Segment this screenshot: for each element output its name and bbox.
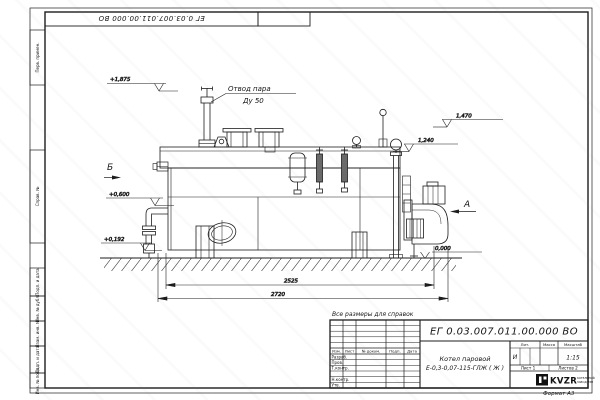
- mass-header: Масса: [543, 342, 555, 347]
- elevation-value: +1,875: [110, 77, 131, 83]
- drawing-canvas: Перв. примен. Справ. № Подп. и дата Инв.…: [0, 0, 600, 400]
- stamp-designation-inverted: ЕГ 0.03.007.011.00.000 ВО: [98, 14, 205, 22]
- steam-outlet-pipe: [199, 87, 215, 148]
- col-header-data: Дата: [407, 349, 417, 354]
- top-stamp: ЕГ 0.03.007.011.00.000 ВО: [45, 12, 310, 26]
- elevation-mark-0000: 0,000: [421, 246, 483, 259]
- gauge-fittings: [288, 109, 387, 194]
- scale-header: Масштаб: [564, 342, 583, 347]
- row-prov: Пров.: [332, 360, 344, 365]
- company-logo: KVZR КОТЕЛЬНЫЙ ЗАВОД РЭП: [536, 374, 595, 387]
- elevation-mark-0600: +0,600: [106, 192, 174, 206]
- elevation-mark-1875: +1,875: [107, 77, 178, 91]
- view-a-label: А: [463, 200, 470, 210]
- steam-outlet-callout: Отвод пара Ду 50: [211, 85, 296, 105]
- elevation-value: 1,470: [456, 114, 472, 120]
- ground-line: [100, 258, 462, 271]
- col-header-doc: № докум.: [362, 349, 381, 354]
- margin-label-inv-dubl: Инв. № дубл.: [35, 295, 40, 322]
- margin-label-vzam-inv: Взам. инв. №: [35, 320, 40, 347]
- sheets-total: Листов 2: [558, 365, 578, 370]
- lit-header: Лит.: [521, 342, 530, 347]
- col-header-list: Лист: [345, 349, 355, 354]
- drum-hatches: [223, 129, 283, 153]
- view-b-label: Б: [107, 163, 113, 173]
- logo-subtext-2: ЗАВОД РЭП: [577, 380, 593, 384]
- margin-label-perv-primen: Перв. примен.: [35, 42, 40, 72]
- row-nkontr: Н.контр.: [332, 377, 350, 382]
- product-name-line2: Е-0,3-0,07-115-ГЛЖ ( Ж ): [426, 365, 504, 372]
- lit-value: И: [513, 354, 518, 361]
- format-label: Формат А3: [543, 391, 575, 397]
- steam-outlet-label-line1: Отвод пара: [228, 85, 271, 93]
- row-utv: Утв.: [332, 383, 340, 388]
- drawing-sheet: { "frame": { "stamp_top": "ЕГ 0.03.007.0…: [0, 0, 600, 400]
- elevation-value: +0,192: [104, 237, 125, 243]
- elevation-value: +0,600: [109, 192, 130, 198]
- margin-label-inv-podl: Инв. № подл.: [35, 367, 40, 395]
- reference-note: Все размеры для справок: [332, 311, 414, 318]
- scale-value: 1:15: [566, 355, 580, 362]
- sheet-number: Лист 1: [521, 365, 536, 370]
- boiler-view: [100, 87, 462, 272]
- manhole-oval: [206, 220, 238, 246]
- elevation-mark-1470: 1,470: [433, 114, 503, 128]
- dimension-length-bottom: 2720: [271, 292, 285, 298]
- dimension-lines: 2525 2720: [158, 246, 448, 302]
- view-a-arrow: [450, 210, 459, 214]
- logo-text: KVZR: [550, 377, 577, 387]
- margin-columns: Перв. примен. Справ. № Подп. и дата Инв.…: [30, 30, 45, 394]
- col-header-podp: Подп.: [389, 349, 401, 354]
- support-legs: [196, 226, 367, 258]
- margin-label-podp-data-1: Подп. и дата: [35, 268, 40, 296]
- title-block: ЕГ 0.03.007.011.00.000 ВО Котел паровой …: [330, 320, 595, 388]
- dimension-length-top: 2525: [284, 279, 298, 285]
- product-name-line1: Котел паровой: [440, 355, 491, 363]
- title-designation: ЕГ 0.03.007.011.00.000 ВО: [430, 327, 578, 338]
- col-header-izm: Изм.: [332, 349, 341, 354]
- view-b-arrow: [112, 176, 121, 180]
- elevation-value: 1,240: [418, 138, 434, 144]
- elevation-mark-1240: 1,240: [393, 138, 458, 152]
- margin-label-sprav: Справ. №: [35, 187, 40, 206]
- steam-outlet-label-line2: Ду 50: [242, 97, 264, 105]
- row-razrab: Разраб.: [332, 354, 348, 359]
- elevation-value: 0,000: [435, 246, 451, 252]
- left-fittings: [143, 162, 169, 258]
- row-tkontr: Т.контр.: [331, 366, 349, 371]
